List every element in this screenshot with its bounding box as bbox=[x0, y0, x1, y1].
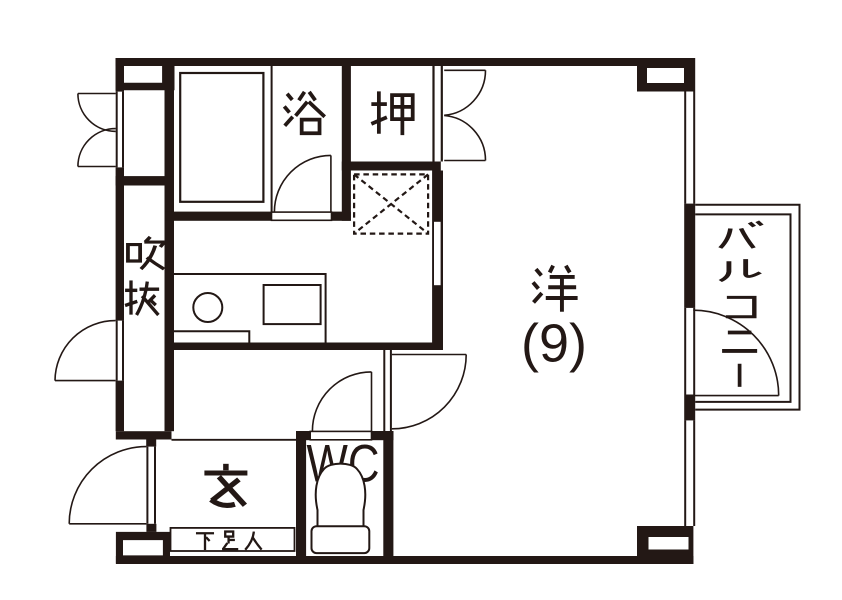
svg-text:(9): (9) bbox=[521, 314, 587, 374]
